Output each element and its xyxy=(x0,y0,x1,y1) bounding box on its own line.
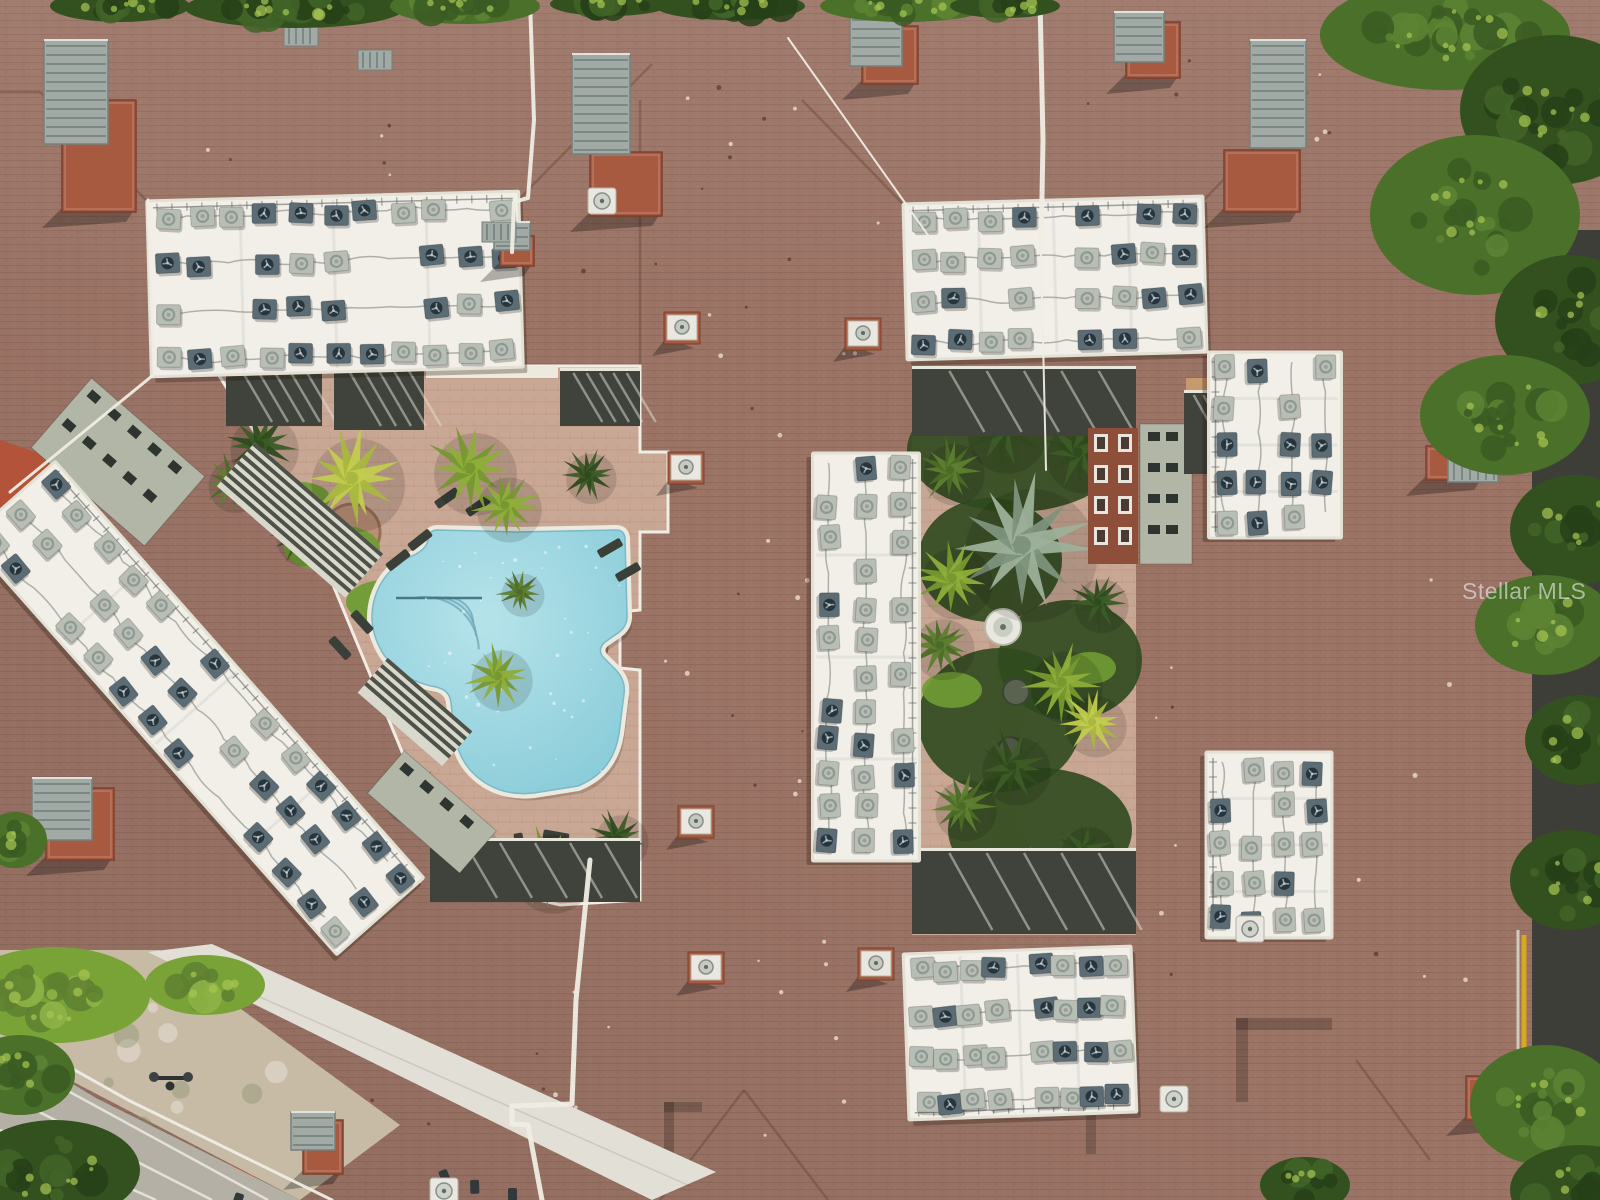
hvac-unit xyxy=(1084,1042,1110,1065)
roof-speckle xyxy=(842,1099,846,1103)
hvac-unit xyxy=(960,1088,988,1113)
hvac-unit xyxy=(908,1005,935,1030)
hvac-unit xyxy=(850,732,875,760)
tree-highlight xyxy=(1028,6,1037,15)
hvac-unit xyxy=(156,209,183,233)
tree-highlight xyxy=(89,1167,93,1171)
roof-speckle xyxy=(1323,130,1327,134)
roof-speckle xyxy=(798,779,802,783)
tree-blob xyxy=(1543,1068,1555,1080)
tree-highlight xyxy=(597,0,605,8)
tree-blob xyxy=(24,1089,42,1107)
tree-highlight xyxy=(1536,312,1541,317)
hvac-unit xyxy=(421,200,447,223)
tree-blob xyxy=(1464,409,1472,417)
roof-speckle xyxy=(729,142,733,146)
window xyxy=(1166,463,1178,472)
tree-highlight xyxy=(1550,757,1556,763)
tree-blob xyxy=(1431,5,1445,19)
water-sparkle xyxy=(428,665,430,667)
hvac-unit xyxy=(186,256,213,280)
roof-speckle xyxy=(701,188,703,190)
tree-highlight xyxy=(1497,425,1503,431)
tree-highlight xyxy=(1576,540,1582,546)
tree-highlight xyxy=(5,981,14,990)
hvac-unit xyxy=(1141,287,1169,312)
tree-highlight xyxy=(111,6,117,12)
hvac-unit xyxy=(978,211,1004,234)
tree-blob xyxy=(1474,171,1482,179)
dirt-mottle xyxy=(242,1083,262,1103)
roof-speckle xyxy=(824,962,828,966)
window xyxy=(1166,525,1178,534)
tree-highlight xyxy=(1551,620,1556,625)
hvac-unit xyxy=(955,1004,983,1029)
hvac-unit xyxy=(816,625,840,652)
roof-speckle xyxy=(685,671,690,676)
fan-hub xyxy=(431,208,435,212)
hvac-unit xyxy=(979,332,1005,355)
hvac-unit xyxy=(1299,761,1323,788)
fan-hub xyxy=(469,351,473,355)
hvac-unit xyxy=(984,999,1012,1024)
hvac-unit xyxy=(852,699,875,725)
hvac-unit xyxy=(1207,904,1231,931)
tree-highlight xyxy=(1555,861,1560,866)
hvac-unit xyxy=(911,291,939,316)
palm-crown xyxy=(464,462,475,473)
water-sparkle xyxy=(570,631,573,634)
roof-speckle xyxy=(370,1098,374,1102)
tree-highlight xyxy=(66,1016,71,1021)
roof-speckle xyxy=(686,96,690,100)
roof-speckle xyxy=(753,783,756,786)
hvac-unit xyxy=(1172,245,1198,268)
water-sparkle xyxy=(582,699,585,702)
tree-highlight xyxy=(487,5,494,12)
hvac-unit xyxy=(889,597,912,623)
tree-highlight xyxy=(1469,229,1475,235)
water-sparkle xyxy=(513,558,517,562)
tree-blob xyxy=(1385,33,1393,41)
courtyard-facade xyxy=(912,366,1136,436)
tree-highlight xyxy=(26,1174,34,1182)
hvac-unit xyxy=(1243,470,1266,496)
tree-blob xyxy=(86,985,103,1002)
window xyxy=(1121,437,1129,449)
water-sparkle xyxy=(490,577,492,579)
hvac-unit xyxy=(853,665,877,692)
tree-highlight xyxy=(22,1061,29,1068)
palm-crown xyxy=(517,589,523,595)
roof-speckle xyxy=(1087,102,1090,105)
chimney-base xyxy=(1224,150,1300,212)
tree-blob xyxy=(1528,523,1542,537)
hvac-unit xyxy=(360,344,386,368)
hvac-unit xyxy=(981,1047,1008,1071)
water-sparkle xyxy=(444,662,446,664)
tree-blob xyxy=(181,986,190,995)
hvac-unit xyxy=(943,208,970,232)
tree-blob xyxy=(204,968,218,982)
tree-blob xyxy=(2,1161,13,1172)
hvac-unit xyxy=(289,253,316,277)
roof-speckle xyxy=(708,313,712,317)
hvac-unit xyxy=(890,530,913,556)
roof-speckle xyxy=(553,1092,558,1097)
roof-speckle xyxy=(1314,137,1319,142)
tree-blob xyxy=(1436,235,1444,243)
street-lamp-head xyxy=(149,1072,159,1082)
hvac-unit xyxy=(854,793,878,820)
water-sparkle xyxy=(595,566,598,569)
palm-crown xyxy=(947,573,957,583)
palm-crown xyxy=(585,472,592,479)
tree-highlight xyxy=(1476,15,1481,20)
roof-hvac-center xyxy=(807,453,920,865)
tree-highlight xyxy=(1539,1080,1548,1089)
tree-blob xyxy=(1562,848,1586,872)
tree-blob xyxy=(47,989,58,1000)
roof-vent-cap xyxy=(358,50,392,70)
window xyxy=(1097,530,1105,542)
vent-dome-center xyxy=(442,1189,446,1193)
hvac-unit xyxy=(1214,432,1237,458)
roof-hvac-right-lower xyxy=(1200,752,1332,942)
hvac-unit xyxy=(818,698,843,726)
hvac-unit xyxy=(1178,283,1206,308)
tree-blob xyxy=(1486,407,1499,420)
hvac-unit xyxy=(852,456,877,484)
tree-blob xyxy=(1536,390,1568,422)
hvac-unit xyxy=(190,206,217,230)
tree-blob xyxy=(1565,881,1578,894)
roof-speckle xyxy=(206,148,210,152)
tree-blob xyxy=(1533,1101,1553,1121)
hvac-unit xyxy=(1211,354,1235,381)
water-sparkle xyxy=(476,703,480,707)
roof-speckle xyxy=(731,714,734,717)
tree-highlight xyxy=(209,984,218,993)
street-lamp xyxy=(166,1082,175,1091)
tree-highlight xyxy=(938,3,946,11)
roof-hvac-top-right xyxy=(903,196,1211,366)
hvac-unit xyxy=(459,343,485,366)
tree-blob xyxy=(1561,1082,1575,1096)
water-sparkle xyxy=(474,552,476,554)
hvac-unit xyxy=(458,246,486,271)
hvac-unit xyxy=(1308,433,1331,459)
hvac-unit xyxy=(288,343,314,366)
tree-highlight xyxy=(1537,630,1549,642)
roof-speckle xyxy=(877,221,880,224)
roof-speckle xyxy=(834,1036,838,1040)
roof-speckle xyxy=(380,134,383,137)
hvac-unit xyxy=(851,828,874,854)
water-sparkle xyxy=(458,565,461,568)
hvac-unit xyxy=(255,255,281,278)
water-sparkle xyxy=(462,610,465,613)
fan-hub xyxy=(335,214,338,217)
fan-hub xyxy=(944,1057,948,1061)
tree-highlight xyxy=(1583,896,1592,905)
courtyard-facade xyxy=(912,848,1142,934)
tree-blob xyxy=(1444,210,1460,226)
tree-highlight xyxy=(70,1178,77,1185)
tree-highlight xyxy=(1576,301,1583,308)
hvac-unit xyxy=(854,494,878,521)
hvac-unit xyxy=(1075,205,1102,229)
street-lamp-head xyxy=(183,1072,193,1082)
tree-highlight xyxy=(314,9,325,20)
tree-blob xyxy=(1537,1089,1547,1099)
tree-highlight xyxy=(1478,179,1483,184)
hvac-unit xyxy=(1053,999,1080,1023)
hvac-unit xyxy=(157,305,183,328)
parapet-wall xyxy=(1040,0,1043,252)
roof-vent-dome xyxy=(1236,916,1264,942)
roof-speckle xyxy=(1155,717,1157,719)
hvac-unit xyxy=(890,728,914,755)
hvac-unit xyxy=(489,338,517,363)
hvac-unit xyxy=(494,289,522,315)
hvac-unit xyxy=(816,593,839,619)
tree-highlight xyxy=(1431,193,1439,201)
roof-speckle xyxy=(795,595,800,600)
water-sparkle xyxy=(563,709,566,712)
roof-speckle xyxy=(581,269,586,274)
fan-hub xyxy=(927,1100,931,1104)
dirt-mottle xyxy=(148,1003,158,1013)
tree-highlight xyxy=(189,989,197,997)
palm-crown xyxy=(1057,677,1067,687)
tree-highlight xyxy=(899,10,906,17)
hvac-unit xyxy=(1271,871,1295,898)
tree-highlight xyxy=(1010,6,1016,12)
tree-highlight xyxy=(81,3,90,12)
hvac-unit xyxy=(1303,798,1328,825)
tree-highlight xyxy=(254,10,261,17)
tree-highlight xyxy=(1561,1185,1569,1193)
roof-speckle xyxy=(1174,844,1177,847)
tree-highlight xyxy=(1576,1107,1586,1117)
hvac-unit xyxy=(817,793,841,820)
tree-highlight xyxy=(9,991,21,1003)
hvac-unit xyxy=(815,760,840,788)
hvac-unit xyxy=(1214,511,1238,538)
hvac-unit xyxy=(1176,327,1204,352)
window xyxy=(1148,525,1160,534)
hvac-unit xyxy=(1313,355,1336,381)
roof-speckle xyxy=(737,593,740,596)
hvac-unit xyxy=(325,205,351,228)
tree-highlight xyxy=(1407,33,1413,39)
water-sparkle xyxy=(529,746,532,749)
fountain-center xyxy=(1000,624,1006,630)
tree-blob xyxy=(59,1139,73,1153)
roof-speckle xyxy=(536,1052,539,1055)
roof-speckle xyxy=(762,117,766,121)
fan-hub xyxy=(901,540,905,544)
roof-speckle xyxy=(1171,706,1174,709)
hvac-unit xyxy=(852,597,877,624)
tree-highlight xyxy=(1514,442,1518,446)
vent-dome-center xyxy=(1172,1097,1176,1101)
window xyxy=(1097,499,1105,511)
aerial-photo xyxy=(0,0,1600,1200)
tree-highlight xyxy=(1571,727,1583,739)
hvac-unit xyxy=(813,494,838,522)
tree-blob xyxy=(1465,50,1475,60)
roof-speckle xyxy=(793,792,798,797)
roof-speckle xyxy=(750,407,753,410)
tree-blob xyxy=(1530,1115,1565,1150)
hvac-unit xyxy=(1244,510,1269,538)
roof-shadow xyxy=(1236,1018,1332,1030)
tree-highlight xyxy=(1580,112,1590,122)
hvac-unit xyxy=(1008,287,1036,312)
hvac-unit xyxy=(1100,995,1127,1019)
courtyard-facade xyxy=(1088,428,1138,564)
roof-speckle xyxy=(387,124,391,128)
hvac-unit xyxy=(324,250,352,275)
tree-highlight xyxy=(1555,1169,1564,1178)
water-sparkle xyxy=(618,585,620,587)
tree-highlight xyxy=(11,831,16,836)
street-object xyxy=(470,1180,479,1194)
vent-dome-center xyxy=(600,199,604,203)
tree-blob xyxy=(1496,1087,1515,1106)
tree-blob xyxy=(1561,331,1576,346)
hvac-unit xyxy=(1298,831,1323,858)
tree-blob xyxy=(1565,88,1584,107)
tree-blob xyxy=(1499,217,1511,229)
tree-highlight xyxy=(1475,424,1484,433)
parapet-sliver xyxy=(912,848,1136,851)
hvac-unit xyxy=(1271,792,1294,818)
hvac-unit xyxy=(1105,1084,1131,1107)
garden-basin xyxy=(1003,679,1029,705)
parapet-sliver xyxy=(912,366,1136,369)
palm-crown xyxy=(946,466,954,474)
tree-blob xyxy=(1565,505,1593,533)
roof-speckle xyxy=(1374,952,1379,957)
vent-dome-center xyxy=(680,325,684,329)
hvac-unit xyxy=(1140,242,1167,266)
window xyxy=(1148,463,1160,472)
tree-blob xyxy=(1481,435,1507,461)
hvac-unit xyxy=(286,296,313,320)
tree-highlight xyxy=(1442,191,1450,199)
roof-speckle xyxy=(1429,578,1432,581)
water-sparkle xyxy=(584,545,588,549)
hvac-unit xyxy=(1281,505,1305,532)
tree-highlight xyxy=(1448,45,1455,52)
roof-speckle xyxy=(778,433,783,438)
tree-highlight xyxy=(31,1014,37,1020)
dirt-mottle xyxy=(265,1061,288,1084)
hvac-unit xyxy=(813,827,838,855)
tree-highlight xyxy=(1538,437,1548,447)
tree-highlight xyxy=(1466,220,1473,227)
tree-blob xyxy=(1502,78,1519,95)
fan-hub xyxy=(337,352,340,355)
window xyxy=(1166,494,1178,503)
tree-highlight xyxy=(1549,737,1558,746)
hvac-unit xyxy=(934,1049,960,1072)
tree-highlight xyxy=(327,4,333,10)
hvac-unit xyxy=(1238,836,1262,863)
tree-highlight xyxy=(244,3,249,8)
water-sparkle xyxy=(571,715,574,718)
palm-crown xyxy=(1094,598,1101,605)
hvac-unit xyxy=(220,345,248,370)
tree-highlight xyxy=(22,1191,28,1197)
tree-highlight xyxy=(931,8,938,15)
tree-highlight xyxy=(1555,625,1567,637)
tree-blob xyxy=(1462,205,1475,218)
palm-crown xyxy=(1007,761,1016,770)
roof-speckle xyxy=(382,161,385,164)
roof-speckle xyxy=(1159,911,1164,916)
hvac-unit xyxy=(1206,830,1231,857)
tree-cluster xyxy=(145,955,265,1015)
roof-speckle xyxy=(607,1026,610,1029)
palm-crown xyxy=(501,501,510,510)
tree-highlight xyxy=(724,4,729,9)
fan-hub xyxy=(1085,297,1089,301)
fan-hub xyxy=(1183,254,1186,257)
hvac-unit xyxy=(1276,394,1301,422)
water-sparkle xyxy=(544,551,547,554)
tree-highlight xyxy=(1499,180,1508,189)
hvac-unit xyxy=(890,829,914,856)
vent-dome-center xyxy=(704,965,708,969)
water-sparkle xyxy=(492,764,495,767)
tree-highlight xyxy=(73,988,82,997)
water-sparkle xyxy=(556,653,560,657)
roof-speckle xyxy=(764,1134,767,1137)
tree-highlight xyxy=(1516,1103,1521,1108)
hvac-unit xyxy=(1080,1086,1107,1110)
water-sparkle xyxy=(502,562,504,564)
hvac-unit xyxy=(1244,359,1268,386)
dirt-mottle xyxy=(171,1101,184,1114)
tree-highlight xyxy=(874,4,881,11)
fan-hub xyxy=(1115,1093,1118,1096)
tree-blob xyxy=(1474,260,1490,276)
tree-blob xyxy=(8,1051,38,1081)
tree-highlight xyxy=(1478,216,1485,223)
hvac-unit xyxy=(1300,908,1325,935)
tree-blob xyxy=(1530,868,1539,877)
hvac-unit xyxy=(1210,871,1233,897)
hvac-unit xyxy=(352,199,380,224)
fan-hub xyxy=(903,774,906,777)
roof-speckle xyxy=(427,1122,430,1125)
hvac-unit xyxy=(912,249,939,274)
dirt-mottle xyxy=(158,1023,178,1043)
roof-speckle xyxy=(1463,978,1468,983)
tree-highlight xyxy=(1443,55,1450,62)
tree-highlight xyxy=(47,1011,55,1019)
hvac-unit xyxy=(157,347,183,370)
water-sparkle xyxy=(465,695,469,699)
tree-blob xyxy=(1567,542,1576,551)
water-sparkle xyxy=(558,546,561,549)
hvac-unit xyxy=(887,662,910,688)
hvac-unit xyxy=(423,297,451,323)
